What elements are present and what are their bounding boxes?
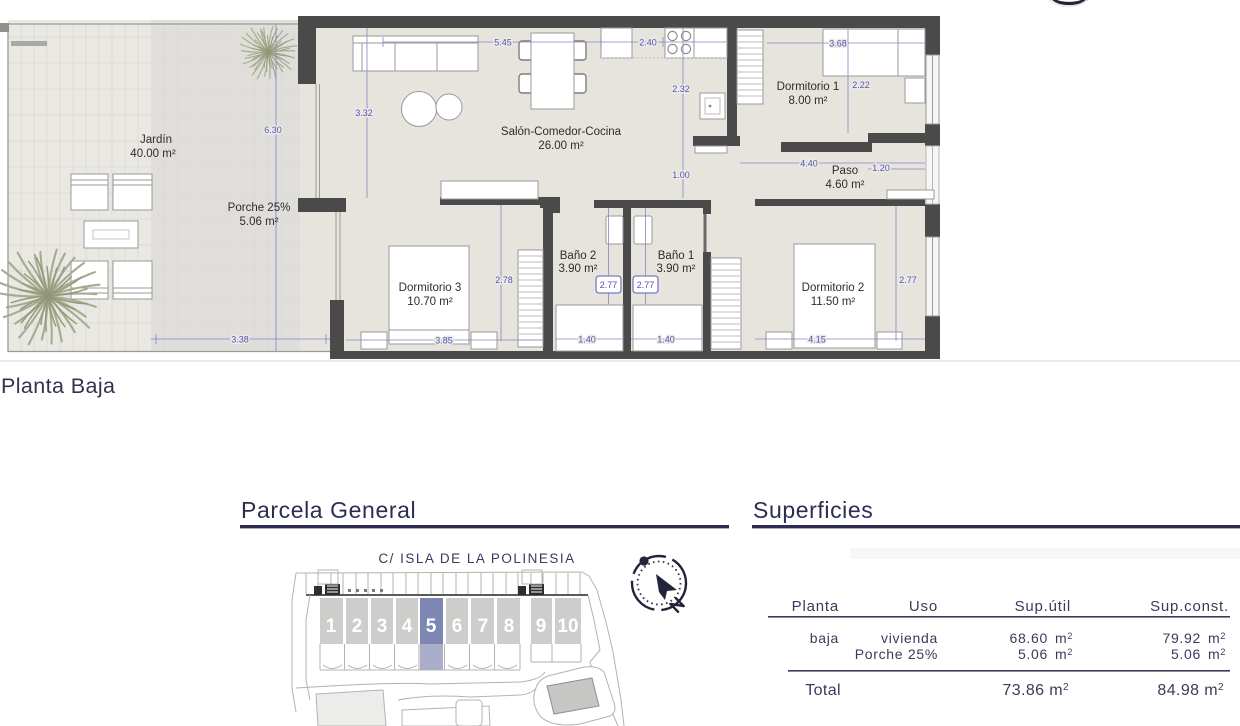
svg-text:26.00 m²: 26.00 m² [538, 140, 584, 152]
svg-text:2.40: 2.40 [639, 38, 657, 48]
svg-text:Planta: Planta [792, 598, 839, 615]
svg-text:Parcela General: Parcela General [241, 497, 416, 523]
svg-text:5.06: 5.06 [1018, 646, 1048, 662]
svg-text:2.77: 2.77 [600, 280, 618, 290]
svg-text:3.90 m²: 3.90 m² [559, 263, 598, 275]
svg-text:5.06 m²: 5.06 m² [240, 216, 279, 228]
svg-text:2: 2 [352, 616, 363, 637]
svg-text:2.22: 2.22 [852, 80, 870, 90]
svg-text:6: 6 [452, 616, 463, 637]
svg-text:1.20: 1.20 [872, 163, 890, 173]
svg-text:Jardín: Jardín [140, 134, 172, 146]
svg-text:1: 1 [326, 616, 337, 637]
svg-text:Superficies: Superficies [753, 497, 873, 523]
svg-text:4.15: 4.15 [808, 335, 826, 345]
svg-text:84.98 m2: 84.98 m2 [1157, 682, 1224, 699]
svg-text:3.90 m²: 3.90 m² [657, 263, 696, 275]
svg-text:Paso: Paso [832, 165, 858, 177]
svg-text:vivienda: vivienda [881, 630, 938, 646]
svg-text:4: 4 [402, 616, 413, 637]
svg-text:10: 10 [557, 616, 578, 637]
svg-text:8.00 m²: 8.00 m² [789, 95, 828, 107]
svg-text:Baño 1: Baño 1 [658, 250, 694, 262]
svg-text:4.60 m²: 4.60 m² [826, 179, 865, 191]
svg-text:2.77: 2.77 [637, 280, 655, 290]
svg-text:C/ ISLA DE LA POLINESIA: C/ ISLA DE LA POLINESIA [378, 551, 575, 566]
svg-text:Total: Total [805, 682, 841, 699]
svg-text:40.00 m²: 40.00 m² [130, 148, 176, 160]
svg-text:73.86 m2: 73.86 m2 [1002, 682, 1069, 699]
svg-text:3.85: 3.85 [435, 336, 453, 346]
svg-text:1.00: 1.00 [672, 170, 690, 180]
svg-text:2.78: 2.78 [495, 275, 513, 285]
svg-text:Porche 25%: Porche 25% [855, 646, 938, 662]
svg-text:3: 3 [377, 616, 388, 637]
svg-text:Uso: Uso [909, 598, 938, 615]
svg-text:68.60: 68.60 [1009, 630, 1048, 646]
svg-text:Porche 25%: Porche 25% [228, 202, 291, 214]
svg-text:8: 8 [504, 616, 515, 637]
svg-text:Baño 2: Baño 2 [560, 250, 596, 262]
svg-text:Planta Baja: Planta Baja [1, 374, 115, 398]
svg-text:Sup.const.: Sup.const. [1150, 598, 1229, 615]
svg-text:79.92: 79.92 [1162, 630, 1201, 646]
svg-text:Salón-Comedor-Cocina: Salón-Comedor-Cocina [501, 126, 622, 138]
svg-text:5: 5 [426, 616, 437, 637]
svg-text:Sup.útil: Sup.útil [1015, 598, 1071, 615]
svg-text:1.40: 1.40 [578, 335, 596, 345]
svg-text:1.40: 1.40 [657, 335, 675, 345]
svg-text:Dormitorio 2: Dormitorio 2 [802, 282, 865, 294]
svg-text:5.06: 5.06 [1171, 646, 1201, 662]
svg-text:baja: baja [810, 630, 839, 646]
svg-text:2.77: 2.77 [899, 275, 917, 285]
svg-text:2.32: 2.32 [672, 84, 690, 94]
svg-text:3.68: 3.68 [829, 39, 847, 49]
svg-text:Dormitorio 1: Dormitorio 1 [777, 81, 840, 93]
svg-text:9: 9 [536, 616, 547, 637]
svg-text:6.30: 6.30 [264, 125, 282, 135]
svg-text:3.32: 3.32 [355, 108, 373, 118]
svg-text:11.50 m²: 11.50 m² [811, 296, 856, 308]
svg-text:5.45: 5.45 [494, 38, 512, 48]
svg-text:10.70 m²: 10.70 m² [407, 296, 453, 308]
svg-text:4.40: 4.40 [800, 159, 818, 169]
svg-text:7: 7 [478, 616, 489, 637]
svg-text:Dormitorio 3: Dormitorio 3 [399, 282, 462, 294]
svg-text:3.38: 3.38 [231, 335, 249, 345]
